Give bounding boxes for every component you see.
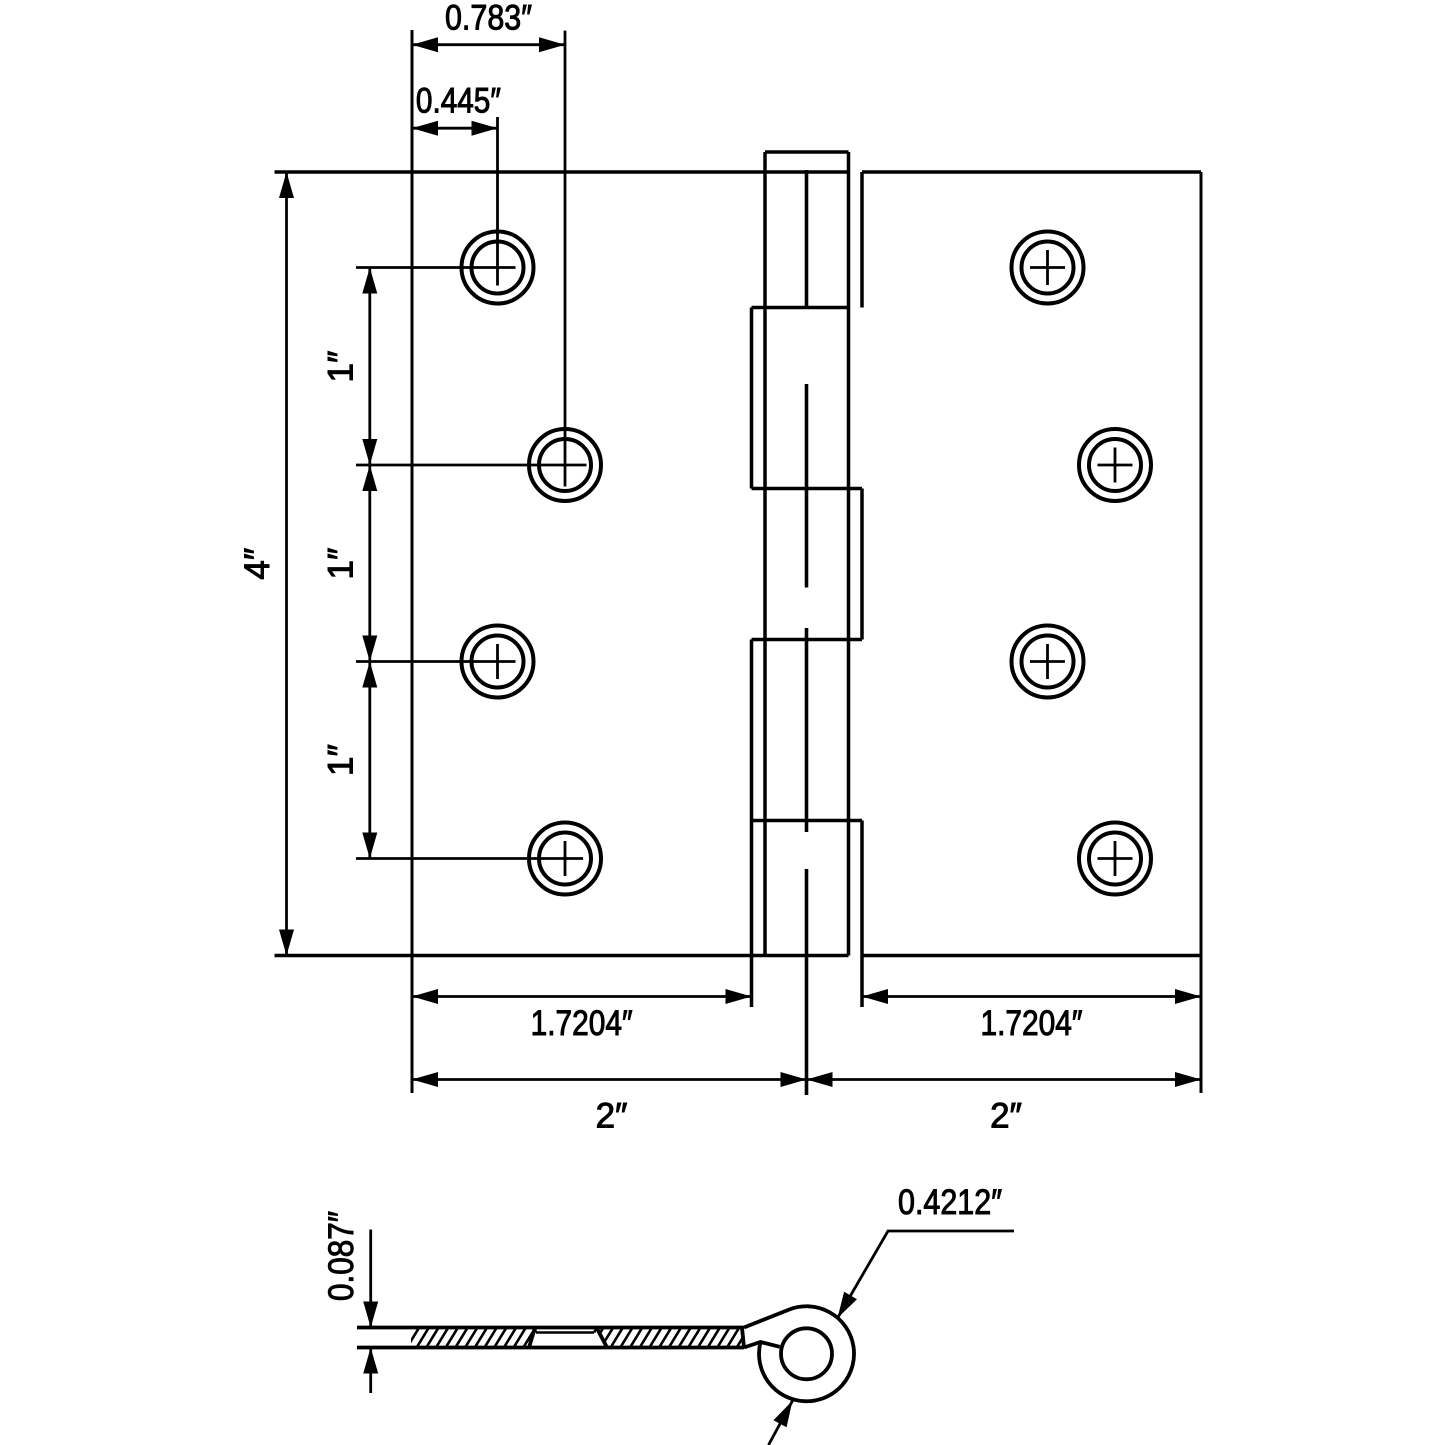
svg-text:1″: 1″ <box>321 548 360 580</box>
svg-text:1″: 1″ <box>321 351 360 383</box>
svg-text:0.4212″: 0.4212″ <box>898 1183 1002 1222</box>
svg-text:0.783″: 0.783″ <box>445 0 532 38</box>
svg-text:1″: 1″ <box>321 744 360 776</box>
svg-text:1.7204″: 1.7204″ <box>981 1004 1083 1043</box>
svg-text:4″: 4″ <box>238 548 277 580</box>
svg-text:2″: 2″ <box>596 1096 628 1135</box>
svg-text:1.7204″: 1.7204″ <box>531 1004 633 1043</box>
svg-text:2″: 2″ <box>990 1096 1022 1135</box>
svg-text:0.445″: 0.445″ <box>416 81 501 120</box>
svg-text:0.087″: 0.087″ <box>322 1211 361 1301</box>
